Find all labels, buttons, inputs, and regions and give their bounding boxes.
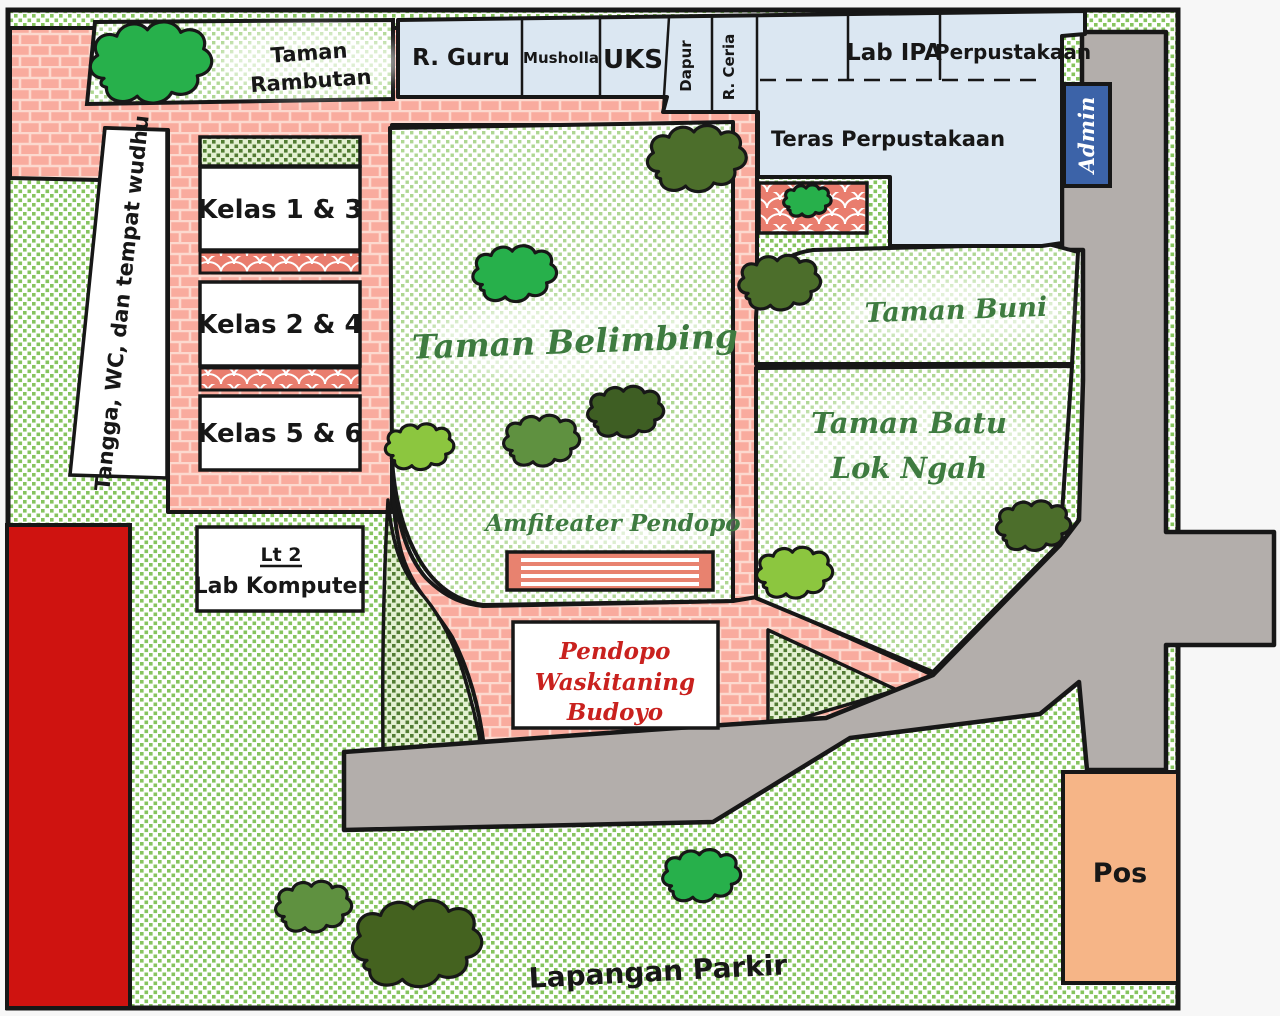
label-amfiteater-pendopo: Amfiteater Pendopo	[483, 510, 740, 537]
label-uks: UKS	[603, 45, 663, 75]
label-kelas-5-6: Kelas 5 & 6	[197, 419, 362, 449]
label-admin: Admin	[1074, 97, 1099, 175]
school-map-page: Taman Rambutan R. Guru Musholla UKS Dapu…	[0, 0, 1280, 1016]
label-taman-buni: Taman Buni	[864, 292, 1047, 329]
tree	[90, 22, 211, 103]
label-pendopo-3: Budoyo	[566, 699, 663, 726]
scallop-strip-1	[200, 252, 360, 273]
tree	[473, 246, 557, 302]
label-dapur: Dapur	[677, 40, 695, 92]
red-building	[7, 525, 130, 1008]
label-kelas-2-4: Kelas 2 & 4	[197, 310, 362, 340]
tree	[784, 185, 832, 217]
tree	[276, 881, 352, 932]
label-taman-batu-2: Lok Ngah	[830, 451, 988, 485]
tree	[352, 900, 481, 986]
label-pos: Pos	[1093, 858, 1147, 889]
tree	[588, 386, 664, 437]
label-lab-ipa: Lab IPA	[846, 40, 942, 66]
label-perpustakaan: Perpustakaan	[935, 40, 1091, 64]
tree	[757, 547, 833, 598]
label-pendopo-1: Pendopo	[559, 638, 671, 665]
scallop-strip-2	[200, 368, 360, 390]
tree	[385, 424, 453, 470]
tree	[663, 850, 741, 902]
tree	[504, 415, 580, 466]
label-taman-batu-1: Taman Batu	[811, 406, 1007, 440]
amphitheater-bench	[507, 552, 713, 590]
label-teras-perpustakaan: Teras Perpustakaan	[771, 127, 1005, 151]
tree	[739, 255, 821, 310]
tree	[647, 126, 746, 192]
shrub-strip-classrooms	[200, 137, 360, 166]
label-lab-komputer: Lab Komputer	[194, 574, 369, 599]
label-pendopo-2: Waskitaning	[535, 669, 695, 696]
label-r-ceria: R. Ceria	[720, 34, 738, 101]
school-map-canvas: Taman Rambutan R. Guru Musholla UKS Dapu…	[0, 0, 1280, 1016]
label-r-guru: R. Guru	[412, 45, 510, 71]
tree	[997, 501, 1071, 551]
label-lt2: Lt 2	[260, 544, 301, 566]
label-musholla: Musholla	[523, 49, 599, 67]
label-kelas-1-3: Kelas 1 & 3	[197, 195, 362, 225]
